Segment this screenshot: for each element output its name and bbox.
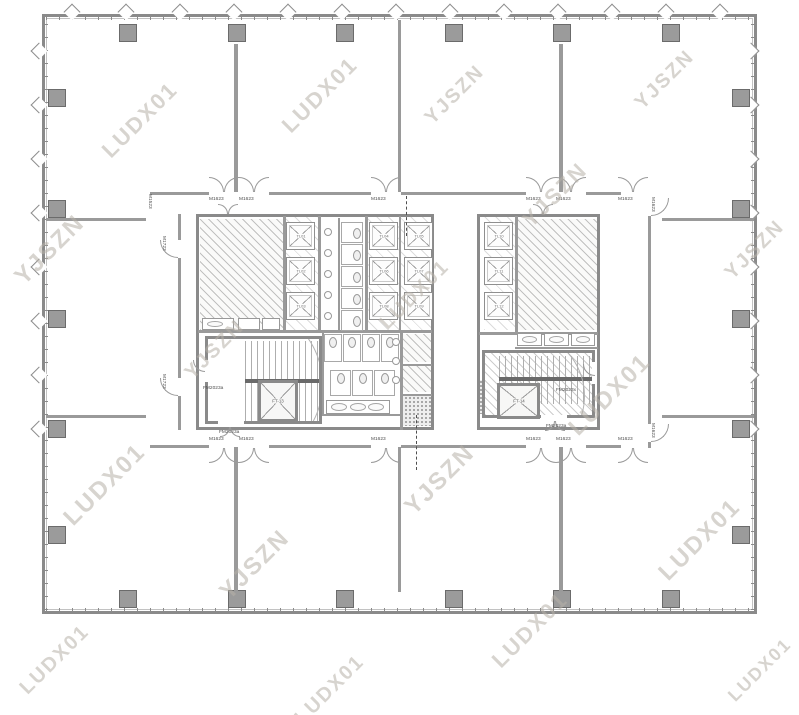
elevator-label: TL04 — [378, 234, 388, 239]
reference-dash-line — [416, 415, 417, 470]
sink-counter — [544, 333, 569, 346]
structural-column — [662, 590, 680, 608]
structural-column — [48, 310, 66, 328]
door-tag-label: M1623 — [556, 436, 571, 441]
elevator-car: TL10 — [484, 222, 513, 250]
door-tag-label: M1523 — [148, 194, 153, 209]
sink-counter — [571, 333, 595, 346]
wall-segment — [586, 445, 621, 448]
toilet-stall — [324, 334, 342, 362]
wall-segment — [401, 192, 526, 195]
service-lift-label: FT-13 — [272, 399, 285, 404]
toilet-stall — [341, 222, 363, 243]
wall-segment — [648, 216, 651, 424]
toilet-stall — [341, 244, 363, 265]
reference-dash-line — [406, 196, 407, 236]
urinal-icon — [324, 312, 332, 320]
sink-counter — [238, 318, 260, 330]
elevator-label: TL09 — [413, 304, 423, 309]
toilet-stall — [362, 334, 380, 362]
structural-column — [732, 420, 750, 438]
toilet-icon — [348, 337, 356, 348]
wall-segment — [178, 258, 181, 378]
wall-segment — [398, 447, 401, 592]
wall-segment — [46, 415, 146, 418]
structural-column — [445, 590, 463, 608]
wall-segment — [398, 20, 401, 192]
structural-column — [48, 200, 66, 218]
wall-segment — [586, 192, 621, 195]
wall-segment — [515, 347, 598, 349]
wall-segment — [648, 442, 651, 448]
elevator-car: TL06 — [369, 257, 398, 285]
structural-column — [553, 24, 571, 42]
toilet-stall — [341, 288, 363, 309]
structural-column — [732, 310, 750, 328]
door-tag-label: M1623 — [651, 423, 656, 438]
structural-column — [228, 590, 246, 608]
elevator-car: TL12 — [484, 292, 513, 320]
elevator-label: TL02 — [295, 269, 305, 274]
structural-column — [228, 24, 246, 42]
wall-segment — [662, 415, 754, 418]
elevator-car: TL01 — [286, 222, 315, 250]
structural-column — [48, 526, 66, 544]
toilet-icon — [337, 373, 345, 384]
structural-column — [119, 24, 137, 42]
structural-column — [48, 420, 66, 438]
door-tag-label: M1623 — [556, 196, 571, 201]
door-tag-label: FM2023a — [219, 429, 239, 434]
structural-column — [732, 89, 750, 107]
door-gap — [541, 415, 567, 420]
urinal-icon — [324, 249, 332, 257]
structural-column — [732, 526, 750, 544]
elevator-label: TL10 — [493, 234, 503, 239]
elevator-label: TL07 — [413, 269, 423, 274]
wall-segment — [269, 445, 371, 448]
watermark-text: LUDX01 — [16, 621, 95, 700]
service-lift: FT-14 — [497, 383, 540, 419]
toilet-stall — [343, 334, 361, 362]
urinal-icon — [324, 291, 332, 299]
door-tag-label: M1623 — [526, 196, 541, 201]
door-tag-label: M1623 — [371, 436, 386, 441]
elevator-label: TL11 — [494, 269, 504, 274]
structural-column — [732, 200, 750, 218]
elevator-car: TL09 — [404, 292, 433, 320]
wall-segment — [400, 332, 403, 430]
wall-segment — [46, 218, 146, 221]
wall-segment — [400, 364, 432, 366]
structural-column — [119, 590, 137, 608]
toilet-icon — [329, 337, 337, 348]
toilet-stall — [341, 266, 363, 287]
watermark-text: LUDX01 — [724, 634, 796, 706]
door-gap — [218, 421, 244, 426]
wall-segment — [269, 192, 371, 195]
toilet-icon — [381, 373, 389, 384]
elevator-label: TL05 — [413, 234, 423, 239]
wall-segment — [178, 214, 181, 240]
door-tag-label: FM2023x — [556, 387, 576, 392]
toilet-icon — [353, 228, 361, 239]
structural-column — [553, 590, 571, 608]
wall-segment — [234, 44, 238, 192]
wall-segment — [234, 447, 238, 592]
elevator-label: TL12 — [493, 304, 503, 309]
urinal-icon — [324, 270, 332, 278]
sink-basin — [331, 403, 347, 411]
door-tag-label: M1623 — [209, 436, 224, 441]
door-tag-label: M1623 — [526, 436, 541, 441]
sink-counter — [517, 333, 542, 346]
wall-segment — [400, 394, 432, 396]
elevator-car: TL07 — [404, 257, 433, 285]
toilet-icon — [353, 272, 361, 283]
structural-column — [48, 89, 66, 107]
urinal-icon — [392, 338, 400, 346]
elevator-car: TL05 — [404, 222, 433, 250]
urinal-icon — [392, 357, 400, 365]
door-tag-label: M1623 — [651, 197, 656, 212]
elevator-label: TL08 — [378, 304, 388, 309]
wall-segment — [365, 216, 368, 332]
sink-counter — [326, 400, 390, 414]
urinal-icon — [392, 376, 400, 384]
elevator-car: TL02 — [286, 257, 315, 285]
toilet-stall — [352, 370, 373, 396]
toilet-icon — [367, 337, 375, 348]
watermark-text: LUDX01 — [291, 651, 370, 715]
wall-segment — [662, 218, 754, 221]
service-lift-label: FT-14 — [512, 399, 525, 404]
wall-segment — [515, 216, 518, 332]
door-tag-label: M1623 — [618, 436, 633, 441]
mullion-ticks-bottom — [46, 608, 753, 613]
door-tag-label: M1723 — [162, 236, 167, 251]
door-tag-label: FM2023a — [203, 385, 223, 390]
toilet-stall — [341, 310, 363, 331]
wall-segment — [559, 447, 563, 592]
elevator-car: TL11 — [484, 257, 513, 285]
structural-column — [336, 24, 354, 42]
sink-basin — [368, 403, 384, 411]
sink-basin — [549, 336, 564, 343]
wall-segment — [150, 192, 209, 195]
sink-basin — [522, 336, 537, 343]
wall-segment — [322, 414, 400, 416]
wall-segment — [399, 216, 401, 330]
elevator-label: TL06 — [378, 269, 388, 274]
wall-segment — [559, 44, 563, 192]
elevator-label: TL03 — [295, 304, 305, 309]
floor-plan-canvas: TL01TL02TL03TL04TL05TL06TL07TL08TL09TL10… — [0, 0, 799, 715]
structural-column — [336, 590, 354, 608]
elevator-car: TL04 — [369, 222, 398, 250]
wall-segment — [338, 218, 340, 330]
toilet-icon — [359, 373, 367, 384]
elevator-car: TL03 — [286, 292, 315, 320]
toilet-icon — [353, 294, 361, 305]
door-tag-label: M1623 — [239, 196, 254, 201]
toilet-icon — [353, 316, 361, 327]
wall-segment — [198, 330, 432, 333]
structural-column — [662, 24, 680, 42]
wall-segment — [401, 445, 526, 448]
toilet-icon — [353, 250, 361, 261]
service-lift: FT-13 — [258, 380, 298, 422]
toilet-stall — [374, 370, 395, 396]
elevator-label: TL01 — [295, 234, 305, 239]
door-tag-label: M1623 — [209, 196, 224, 201]
elevator-car: TL08 — [369, 292, 398, 320]
door-tag-label: M1623 — [618, 196, 633, 201]
wall-segment — [150, 445, 209, 448]
door-tag-label: FM2023a — [546, 423, 566, 428]
sink-basin — [350, 403, 366, 411]
sink-counter — [262, 318, 280, 330]
door-tag-label: M1723 — [162, 374, 167, 389]
sink-basin — [576, 336, 590, 343]
door-tag-label: M1623 — [371, 196, 386, 201]
toilet-stall — [330, 370, 351, 396]
sink-counter — [202, 318, 234, 330]
urinal-icon — [324, 228, 332, 236]
wall-segment — [318, 216, 321, 332]
sink-basin — [207, 321, 223, 327]
structural-column — [445, 24, 463, 42]
door-tag-label: M1623 — [239, 436, 254, 441]
wall-segment — [178, 396, 181, 430]
